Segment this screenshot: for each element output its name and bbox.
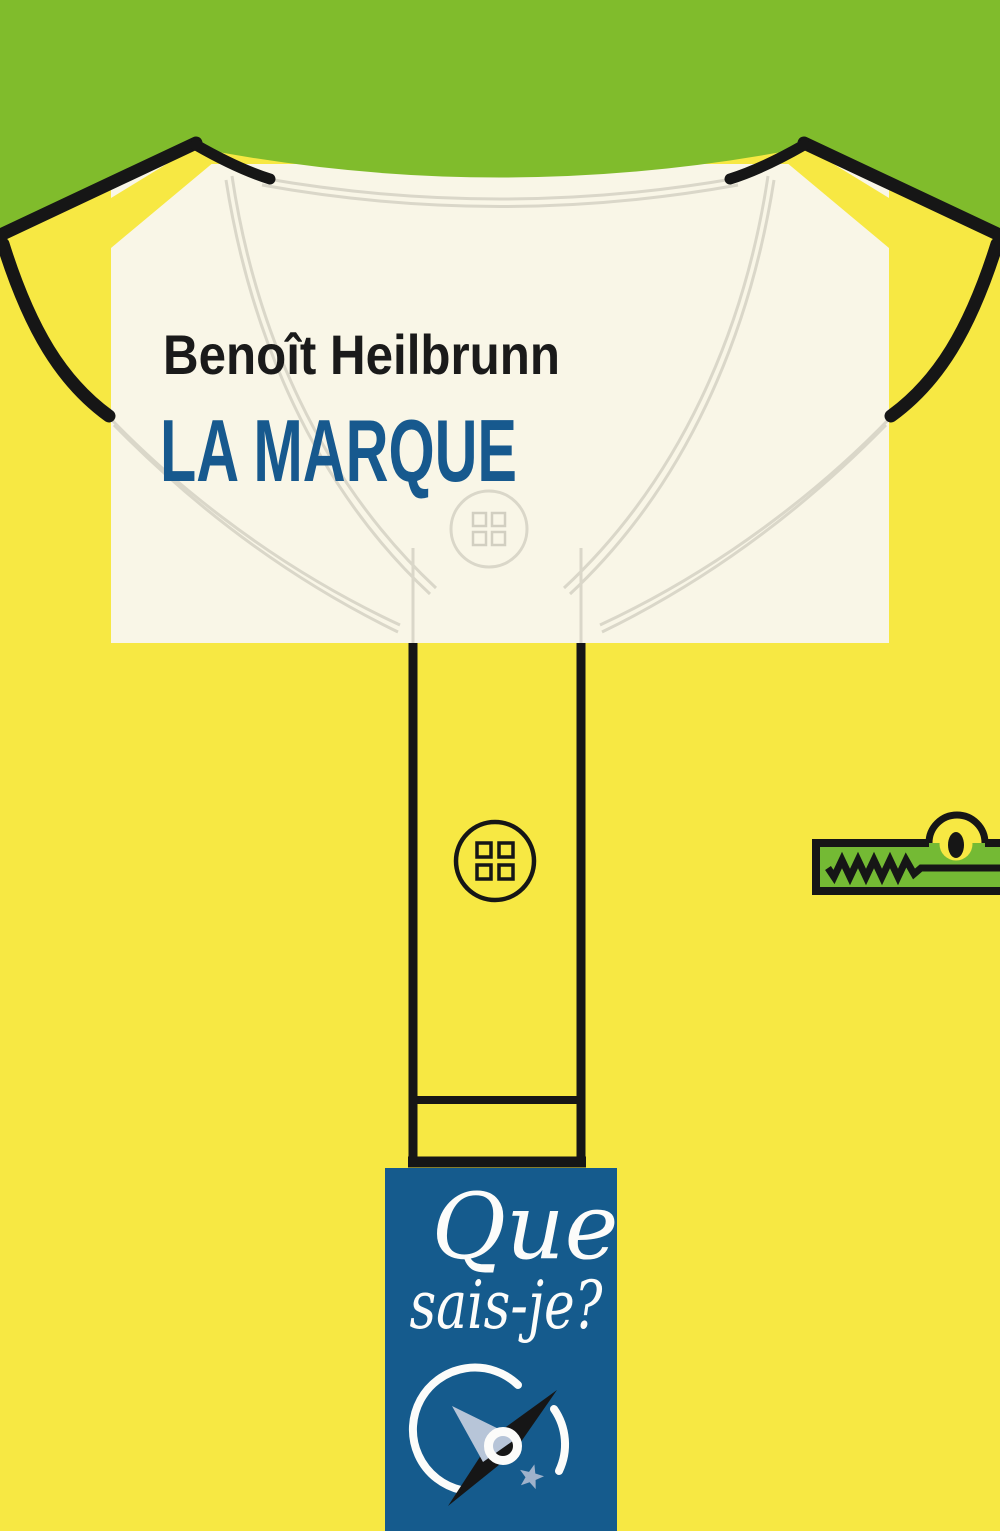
author-name: Benoît Heilbrunn bbox=[163, 323, 560, 386]
collection-name-line2: sais-je? bbox=[410, 1267, 603, 1344]
book-title: LA MARQUE bbox=[160, 401, 517, 500]
collection-name-line1: Que bbox=[431, 1175, 618, 1280]
book-cover: Benoît Heilbrunn LA MARQUE Que sais-je? bbox=[0, 0, 1000, 1531]
cover-artwork: Benoît Heilbrunn LA MARQUE Que sais-je? bbox=[0, 0, 1000, 1531]
